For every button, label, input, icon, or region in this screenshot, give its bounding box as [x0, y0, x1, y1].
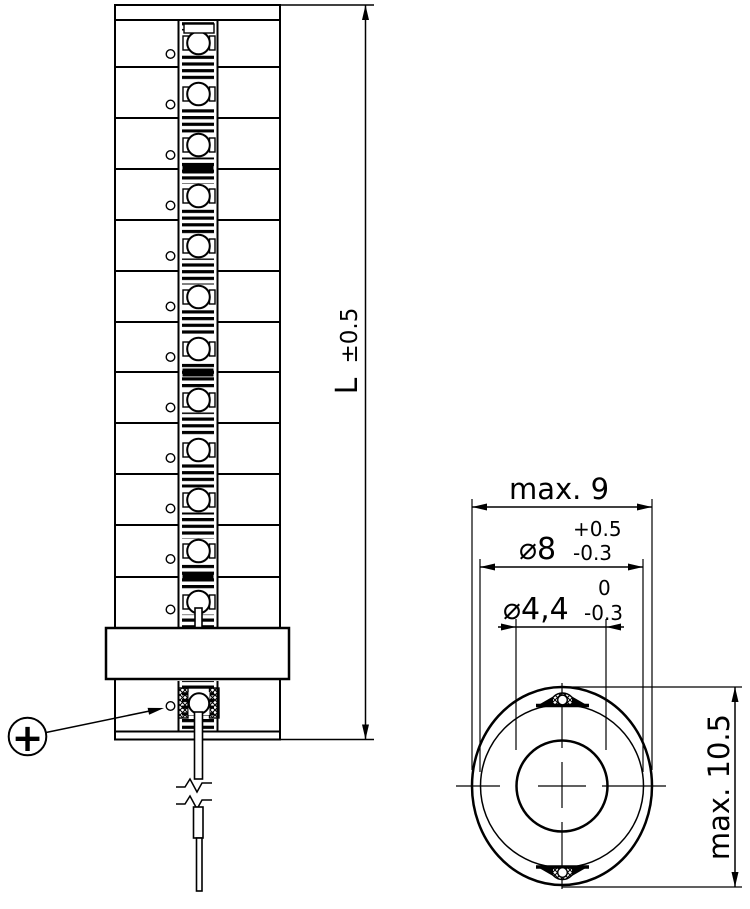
label-core-diameter: ⌀4,4 — [503, 592, 569, 627]
vent-hole — [166, 555, 175, 564]
vent-hole — [166, 302, 175, 311]
crimp-block-right — [210, 688, 220, 718]
vent-hole — [166, 454, 175, 463]
vent-hole — [166, 353, 175, 362]
vent-hole — [166, 504, 175, 513]
vent-hole — [166, 50, 175, 59]
label-core-tol-upper: 0 — [598, 576, 611, 600]
label-max-10-5: max. 10.5 — [702, 714, 736, 860]
vent-hole — [166, 151, 175, 160]
sheet-background — [0, 0, 750, 904]
vent-hole — [166, 100, 175, 109]
vent-hole — [166, 702, 175, 711]
polarity-plus-label: + — [12, 716, 44, 760]
label-max-9: max. 9 — [509, 472, 609, 506]
vent-hole — [166, 605, 175, 614]
vent-hole — [166, 201, 175, 210]
lead-wire-bare-end — [197, 838, 203, 891]
vent-hole — [166, 252, 175, 261]
label-core-tol-lower: -0.3 — [584, 601, 623, 625]
drawing-sheet: + L ±0.5 — [0, 0, 750, 904]
label-outer-tol-upper: +0.5 — [573, 517, 622, 541]
label-outer-tol-lower: -0.3 — [573, 541, 612, 565]
terminal-coil-turn — [189, 693, 209, 713]
lead-wire-insulated — [194, 807, 204, 838]
lead-wire-upper — [195, 712, 203, 779]
top-contact-plate — [184, 24, 214, 33]
vent-hole — [166, 403, 175, 412]
coil-end-wire — [195, 608, 202, 628]
label-outer-diameter: ⌀8 — [519, 532, 556, 567]
technical-drawing: + L ±0.5 — [0, 0, 750, 904]
coil-column — [179, 20, 218, 732]
crimp-block-left — [179, 688, 189, 718]
mounting-flange — [106, 628, 289, 679]
